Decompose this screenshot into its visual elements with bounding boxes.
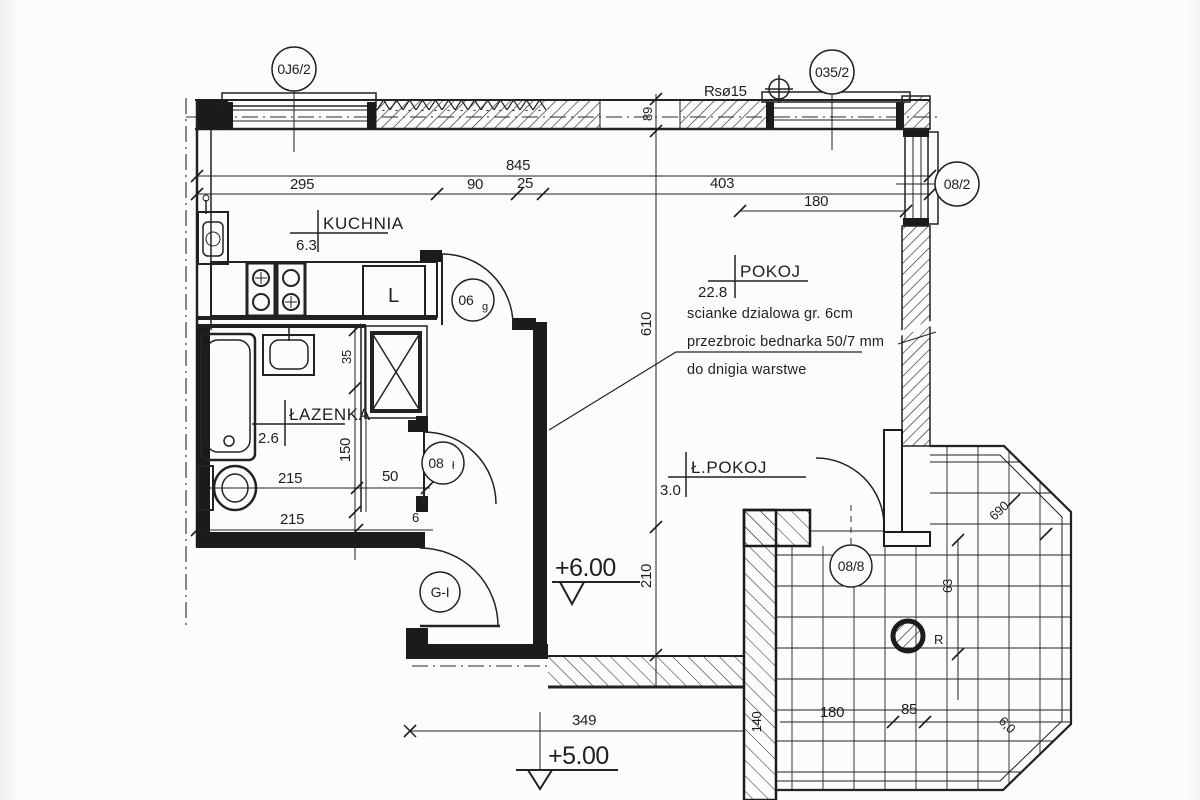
dim-150: 150 [337, 438, 354, 462]
room-kuchnia-area: 6.3 [296, 237, 317, 254]
dim-pokoj-window: 180 [734, 193, 912, 217]
note-line-3: do dnigia warstwe [687, 362, 806, 378]
door-tag-entry: G-I [420, 572, 460, 612]
kitchen: L KUCHNIA 6.3 [196, 195, 437, 318]
door-tag-bath: 08 ł [422, 442, 464, 484]
dim-35: 35 [339, 350, 354, 364]
floor-plan-drawing: L KUCHNIA 6.3 ŁA [0, 0, 1200, 800]
balcony-door [810, 458, 884, 531]
dim-215-a: 215 [278, 470, 302, 487]
room-lpokoj-name: Ł.POKOJ [691, 458, 767, 477]
room-kuchnia-name: KUCHNIA [323, 214, 404, 233]
partition-note: scianke dzialowa gr. 6cm przezbroic bedn… [549, 306, 884, 430]
dim-403: 403 [710, 175, 734, 192]
dim-6: 6 [412, 510, 419, 525]
dim-215-b: 215 [280, 511, 304, 528]
room-lpokoj-area: 3.0 [660, 482, 681, 499]
dim-845: 845 [506, 157, 530, 174]
fridge: L [363, 266, 425, 316]
lpokoj-room-label: Ł.POKOJ 3.0 [660, 452, 806, 499]
kitchen-sink [198, 195, 228, 264]
door-tag-balcony: 08/8 [830, 505, 872, 587]
dim-89: 89 [640, 107, 655, 121]
kitchen-room-label: KUCHNIA 6.3 [290, 210, 404, 254]
level-lower-marker: +5.00 [516, 712, 618, 789]
level-lower: +5.00 [548, 742, 609, 770]
note-line-1: scianke dzialowa gr. 6cm [687, 306, 853, 322]
note-line-2: przezbroic bednarka 50/7 mm [687, 334, 884, 350]
room-pokoj-area: 22.8 [698, 284, 727, 301]
dim-180-top: 180 [804, 193, 828, 210]
door-tag-entry-label: G-I [431, 584, 450, 600]
window-right-side [903, 129, 938, 226]
level-upper-marker: +6.00 [552, 554, 640, 604]
dim-25: 25 [517, 175, 533, 192]
fridge-label: L [388, 285, 399, 307]
dim-349: 349 [572, 712, 596, 729]
window-tag-right-label: 035/2 [815, 64, 849, 80]
kitchen-counter [196, 262, 437, 318]
right-wall [898, 129, 938, 446]
dim-balcony-140: 140 [749, 712, 764, 733]
room-lazienka-area: 2.6 [258, 430, 279, 447]
floor-plan-sheet: L KUCHNIA 6.3 ŁA [0, 0, 1200, 800]
balcony-tile-grid [770, 440, 1075, 800]
dim-balcony-r: R [934, 632, 943, 647]
room-pokoj-name: POKOJ [740, 262, 801, 281]
balcony-column [893, 621, 923, 651]
dim-balcony-690: 690 [986, 498, 1011, 523]
dim-295: 295 [290, 176, 314, 193]
door-tag-kitchen-sub: g [482, 301, 488, 313]
washbasin [263, 328, 314, 375]
dim-balcony-63: 63 [940, 579, 955, 593]
ventilation-shaft [365, 326, 428, 426]
dim-balcony-60: 6,0 [996, 713, 1019, 736]
top-wall [195, 92, 930, 130]
riser-label: Rsø15 [704, 83, 747, 100]
dim-balcony-85: 85 [901, 701, 917, 718]
bathroom-dims: 35 150 215 50 215 6 [191, 324, 433, 560]
window-tag-left-label: 0J6/2 [277, 61, 311, 77]
door-tag-balcony-label: 08/8 [838, 558, 865, 574]
room-lazienka-name: ŁAZENKA [289, 405, 371, 424]
dim-balcony-180: 180 [820, 704, 844, 721]
pokoj-room-label: POKOJ 22.8 [698, 255, 808, 301]
door-tag-kitchen: 06 g [452, 279, 494, 321]
riser-marker: Rsø15 [704, 75, 793, 103]
dim-center-vertical: 89 610 210 [638, 93, 662, 688]
dim-bottom-349: 349 [404, 712, 744, 737]
level-upper: +6.00 [555, 554, 616, 582]
balcony [744, 430, 1075, 800]
door-tag-kitchen-label: 06 [458, 292, 474, 308]
dim-50: 50 [382, 468, 398, 485]
bottom-wall [548, 656, 744, 687]
window-top-left [222, 93, 376, 129]
dim-610: 610 [638, 312, 655, 336]
stove [247, 263, 305, 316]
door-tag-bath-label: 08 [428, 455, 444, 471]
door-tag-pokoj-window-label: 08/2 [944, 176, 971, 192]
dim-90: 90 [467, 176, 483, 193]
dim-210: 210 [638, 564, 655, 588]
